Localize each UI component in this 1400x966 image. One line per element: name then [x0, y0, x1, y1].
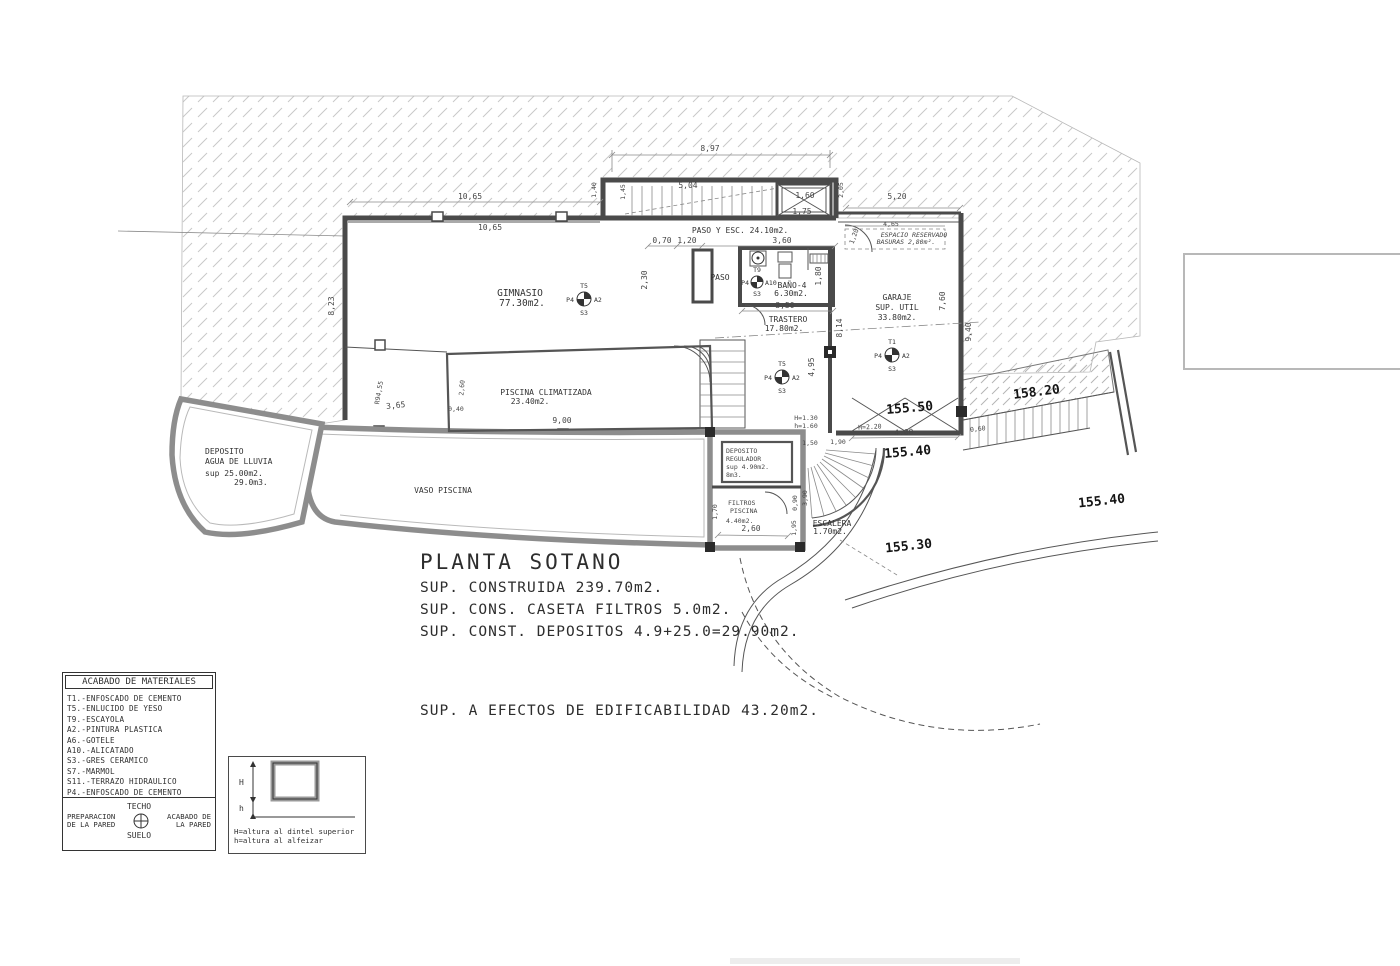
vaso-piscina-walls [307, 427, 712, 545]
level-15550: 155.50 [886, 399, 934, 418]
dim-465: 4,65 [883, 220, 899, 228]
dim-1065-inner: 10,65 [478, 223, 502, 232]
sup-edificabilidad: SUP. A EFECTOS DE EDIFICABILIDAD 43.20m2… [420, 703, 819, 719]
legend-acabado: ACABADO DE LA PARED [167, 813, 211, 830]
material-item: S7.-MARMOL [67, 767, 211, 777]
column-core [828, 350, 832, 354]
dim-r9455: R94,55 [373, 380, 385, 405]
label-filtros-2: PISCINA [730, 507, 757, 515]
room-area-gimnasio: 77.30m2. [499, 298, 545, 309]
legend-techo: TECHO [63, 802, 215, 811]
door-arc-trastero [745, 305, 765, 325]
material-item: T5.-ENLUCIDO DE YESO [67, 704, 211, 714]
stair-break-line [625, 188, 778, 214]
level-15540-a: 155.40 [884, 443, 932, 462]
column [432, 212, 443, 221]
height-160: h=1.60 [794, 422, 818, 430]
room-label-garaje-2: SUP. UTIL [875, 303, 919, 312]
marker-left: P4 [741, 279, 749, 287]
label-dep-reg-1: DEPOSITO [726, 447, 757, 455]
dim-120a: 1,20 [677, 236, 696, 245]
marker-right: A2 [594, 296, 602, 304]
column [556, 212, 567, 221]
legend-prep-line2: DE LA PARED [67, 821, 115, 830]
slanted-wall [1110, 350, 1136, 455]
material-item: T1.-ENFOSCADO DE CEMENTO [67, 694, 211, 704]
material-item: T9.-ESCAYOLA [67, 715, 211, 725]
materials-legend-header: ACABADO DE MATERIALES [65, 675, 213, 689]
toilet-bowl-icon [779, 264, 791, 278]
label-dep-lluvia-2: AGUA DE LLUVIA [205, 457, 273, 466]
label-filtros-1: FILTROS [728, 499, 755, 507]
marker-top: T5 [580, 282, 588, 290]
column-filled [956, 406, 967, 417]
sup-depositos: SUP. CONST. DEPOSITOS 4.9+25.0=29.90m2. [420, 624, 799, 640]
marker-bottom: S3 [888, 365, 896, 373]
window-height-diagram: H h [229, 757, 363, 825]
window-height-legend: H h H=altura al dintel superior h=altura… [228, 756, 366, 854]
label-dep-reg-2: REGULADOR [726, 455, 761, 463]
legend-dintel-line: H=altura al dintel superior [234, 827, 354, 836]
dim-400: 4.00 [894, 427, 914, 437]
dim-365: 3,65 [386, 400, 406, 411]
dim-170: 1,70 [711, 504, 719, 520]
dim-190: 1,90 [830, 438, 846, 446]
dim-195: 1,95 [790, 520, 798, 536]
dim-1065-outer: 10,65 [458, 192, 482, 201]
material-item: S3.-GRES CERAMICO [67, 756, 211, 766]
marker-left: P4 [764, 374, 772, 382]
marker-top: T9 [753, 266, 761, 274]
dim-390: 3,90 [801, 490, 809, 506]
legend-acab-line2: LA PARED [167, 821, 211, 830]
label-dep-reg-3: sup 4.90m2. [726, 463, 769, 471]
dim-360: 3,60 [772, 236, 791, 245]
room-label-paso: PASO [710, 273, 729, 282]
dim-160: 1,60 [795, 191, 814, 200]
material-item: A10.-ALICATADO [67, 746, 211, 756]
label-basuras-2: BASURAS 2,80m². [877, 238, 936, 246]
room-label-trastero: TRASTERO [769, 315, 808, 324]
window-symbol [273, 763, 317, 799]
dim-760: 7,60 [938, 291, 947, 310]
room-area-trastero: 17.80m2. [765, 324, 804, 333]
basement-stair-treads [700, 351, 745, 417]
material-item: A6.-GOTELE [67, 736, 211, 746]
legend-alfeizar-line: h=altura al alfeizar [234, 836, 354, 845]
room-label-paso-esc: PASO Y ESC. 24.10m2. [692, 226, 788, 235]
plan-title-block: PLANTA SOTANO SUP. CONSTRUIDA 239.70m2. … [420, 550, 799, 640]
materials-legend-list: T1.-ENFOSCADO DE CEMENTO T5.-ENLUCIDO DE… [63, 691, 215, 812]
sink-drain-icon [757, 257, 760, 260]
room-label-garaje: GARAJE [883, 293, 912, 302]
deposito-lluvia-walls [172, 399, 322, 534]
dim-823: 8,23 [327, 296, 336, 315]
terrain-hatch [181, 96, 1140, 424]
label-dep-lluvia-1: DEPOSITO [205, 447, 244, 456]
sup-caseta-filtros: SUP. CONS. CASETA FILTROS 5.0m2. [420, 602, 799, 618]
room-area-escalera: 1.70m2. [813, 527, 847, 536]
label-dep-lluvia-4: 29.0m3. [234, 478, 268, 487]
marker-left: P4 [566, 296, 574, 304]
legend-h-label: h [239, 804, 244, 813]
level-15530: 155.30 [884, 537, 932, 557]
dim-260a: 2,60 [457, 380, 466, 396]
dashdot-line [715, 322, 980, 338]
marker-right: A2 [902, 352, 910, 360]
material-marker-paso: T9 P4 A10 S3 [741, 266, 777, 298]
plan-title: PLANTA SOTANO [420, 550, 799, 574]
gym-pool-divider [345, 347, 447, 352]
height-130: H=1.30 [794, 414, 818, 422]
column-filled [705, 427, 715, 437]
dim-814: 8,14 [835, 318, 844, 337]
marker-bottom: S3 [753, 290, 761, 298]
label-dep-lluvia-3: sup 25.00m2. [205, 469, 263, 478]
room-area-piscina: 23.40m2. [511, 397, 550, 406]
marker-right: A2 [792, 374, 800, 382]
floorplan-sheet: T5 P4 A2 S3 T9 P4 A10 S3 T5 P4 A2 S3 T1 … [0, 0, 1400, 966]
room-area-garaje: 33.80m2. [878, 313, 917, 322]
dim-150: 1,50 [802, 439, 818, 447]
bottom-faint-strip [730, 958, 1020, 964]
height-220: H=2.20 [858, 422, 882, 431]
dim-897: 8,97 [700, 144, 719, 153]
toilet-tank-icon [778, 252, 792, 262]
material-marker-garaje: T1 P4 A2 S3 [874, 338, 910, 373]
paso-pier [693, 250, 712, 302]
materials-legend-symbol-box: TECHO PREPARACION DE LA PARED ACABADO DE… [62, 797, 216, 851]
dim-060: 0,60 [970, 424, 986, 434]
dim-145: 1,45 [619, 184, 627, 200]
label-dep-reg-4: 8m3. [726, 471, 742, 479]
material-marker-trastero: T5 P4 A2 S3 [764, 360, 800, 395]
material-marker-icon [132, 812, 150, 830]
empty-title-box [1183, 253, 1400, 370]
level-15540-b: 155.40 [1077, 492, 1125, 512]
dim-900: 9,00 [552, 416, 571, 425]
marker-bottom: S3 [580, 309, 588, 317]
marker-right: A10 [765, 279, 777, 287]
materials-legend: ACABADO DE MATERIALES T1.-ENFOSCADO DE C… [62, 672, 216, 813]
dim-175: 1,75 [792, 207, 811, 216]
marker-top: T5 [778, 360, 786, 368]
column [375, 340, 385, 350]
dim-040: 0,40 [448, 405, 464, 413]
sup-construida: SUP. CONSTRUIDA 239.70m2. [420, 580, 799, 596]
legend-suelo: SUELO [63, 831, 215, 840]
dim-260b: 2,60 [741, 524, 760, 533]
legend-H-label: H [239, 778, 244, 787]
dim-120b: 1,20 [848, 228, 861, 246]
dim-180: 1,80 [814, 266, 823, 285]
dim-940: 9,40 [964, 322, 973, 341]
dim-090: 0,90 [791, 495, 799, 511]
dim-504: 5,04 [678, 181, 697, 190]
room-label-piscina: PISCINA CLIMATIZADA [500, 388, 592, 397]
dim-350: 3,50 [775, 301, 794, 310]
dim-495: 4,95 [807, 357, 816, 376]
dim-140: 1,40 [590, 182, 598, 198]
room-label-vaso: VASO PISCINA [414, 486, 472, 495]
material-marker-gimnasio: T5 P4 A2 S3 [566, 282, 602, 317]
dim-520: 5,20 [887, 192, 906, 201]
window-legend-text: H=altura al dintel superior h=altura al … [234, 827, 354, 845]
material-item: A2.-PINTURA PLASTICA [67, 725, 211, 735]
material-item: S11.-TERRAZO HIDRAULICO [67, 777, 211, 787]
radiator-fins [813, 254, 825, 263]
marker-top: T1 [888, 338, 896, 346]
room-area-bano4: 6.30m2. [774, 289, 808, 298]
legend-preparacion: PREPARACION DE LA PARED [67, 813, 115, 830]
dim-230: 2,30 [640, 270, 649, 289]
marker-bottom: S3 [778, 387, 786, 395]
dim-205: 2,05 [837, 182, 845, 198]
marker-left: P4 [874, 352, 882, 360]
dim-070: 0,70 [652, 236, 671, 245]
